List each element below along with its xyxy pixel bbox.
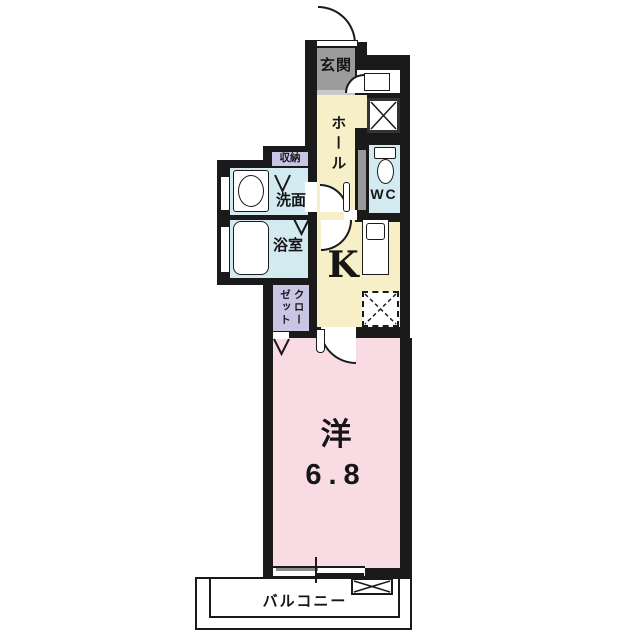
vanity-basin	[238, 175, 264, 207]
refrigerator-space-box	[362, 291, 399, 327]
kitchen-sink	[366, 223, 385, 240]
storage-label: 収納	[271, 151, 309, 166]
toilet-tank	[374, 147, 396, 159]
entrance-door-leaf	[316, 40, 358, 47]
pipe-space-box	[367, 98, 400, 133]
wall-kitchen-bottom-right	[355, 327, 410, 338]
washroom-window-slot	[221, 177, 229, 210]
bathtub	[233, 221, 269, 275]
balcony-label: バルコニー	[238, 592, 372, 612]
toilet-bowl	[377, 159, 394, 184]
bathroom-folding-door-mark	[293, 217, 310, 236]
shoe-cabinet	[364, 73, 390, 91]
entrance-door-arc	[318, 6, 356, 44]
genkan-label: 玄関	[317, 56, 355, 76]
floorplan: 玄関 ホール WC 収納 洗面 浴室 K クローゼット 洋 6.8 バルコニー	[0, 0, 640, 640]
balcony-window-rail-left	[276, 568, 318, 571]
balcony-window-rail-right	[316, 573, 364, 576]
bathroom-window-slot	[221, 227, 229, 272]
hall-floor-extension	[355, 95, 367, 128]
main-room-label: 洋	[276, 416, 396, 454]
wc-door-panel	[358, 150, 366, 210]
wc-label: WC	[368, 186, 400, 204]
storage-folding-door-mark	[274, 173, 291, 193]
hall-label: ホール	[325, 103, 349, 187]
washroom-label: 洗面	[270, 191, 312, 211]
refrigerator-space-x-icon	[364, 293, 397, 325]
kitchen-label: K	[322, 245, 364, 287]
closet-folding-door-mark	[273, 337, 290, 356]
pipe-space-x-icon	[370, 101, 397, 130]
closet-label: クローゼット	[275, 286, 307, 330]
balcony-window-center-tick	[315, 557, 317, 583]
wall-room-right	[400, 338, 412, 578]
bathroom-label: 浴室	[266, 236, 310, 256]
wall-room-left	[263, 330, 273, 577]
main-room-door-leaf	[316, 329, 325, 353]
main-room-size: 6.8	[276, 458, 396, 494]
